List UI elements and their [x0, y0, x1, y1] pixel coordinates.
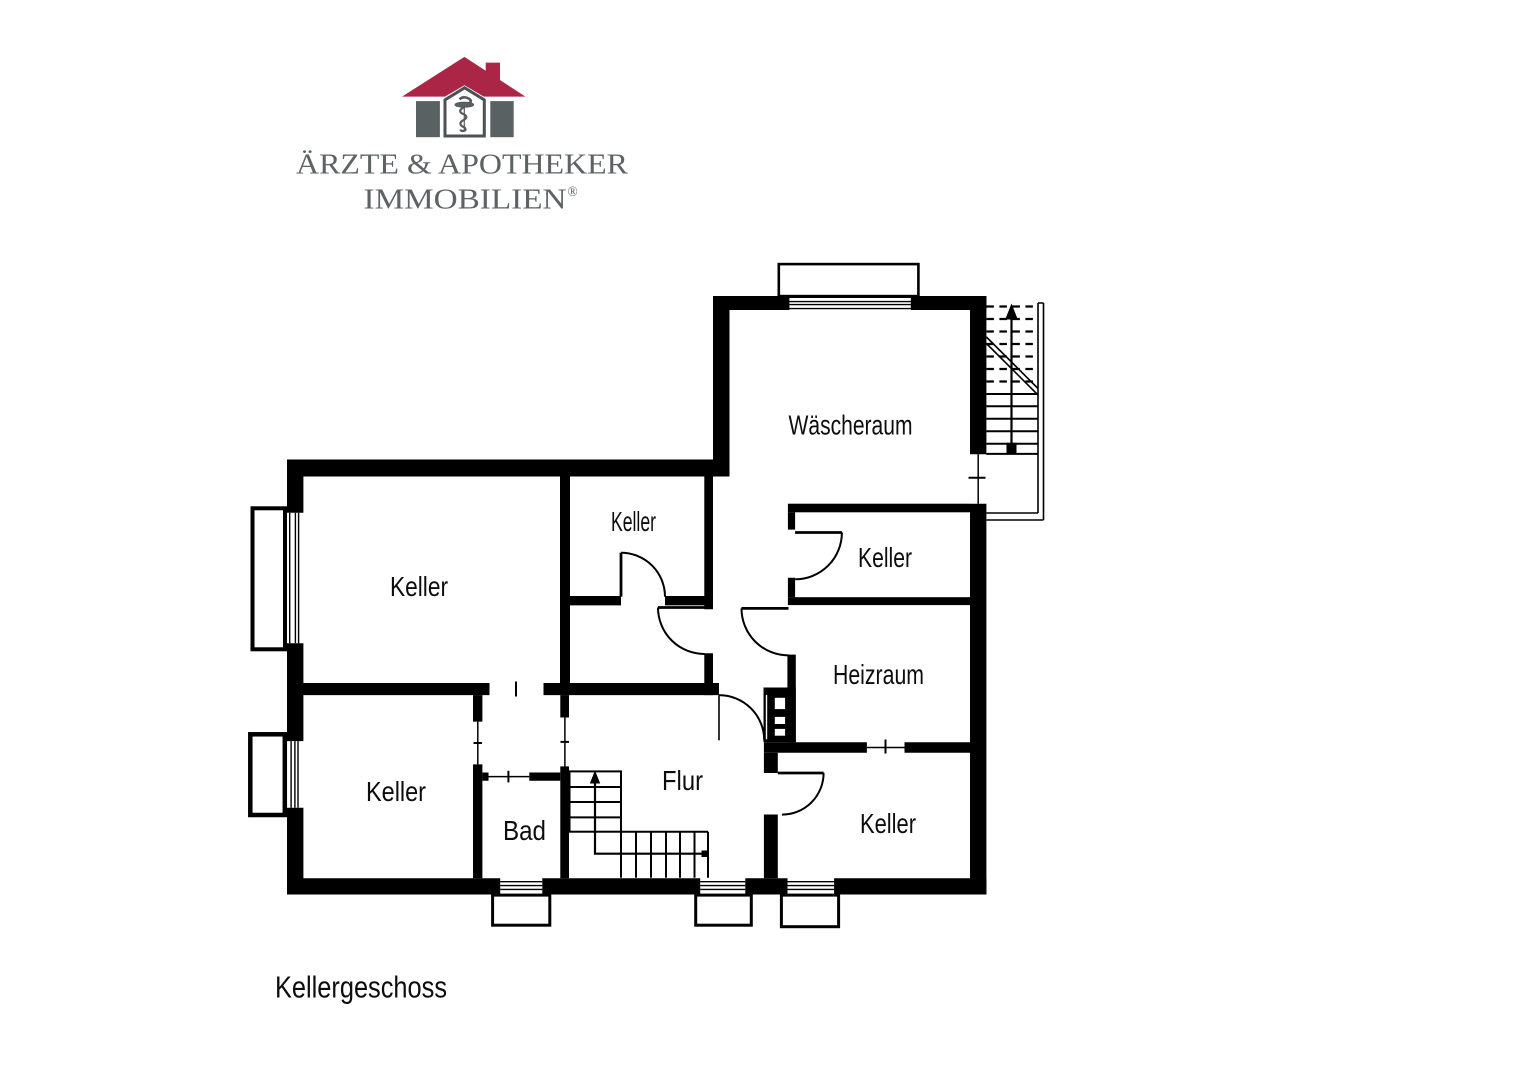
svg-text:Keller: Keller — [390, 571, 448, 602]
svg-text:Bad: Bad — [503, 815, 546, 846]
svg-text:®: ® — [568, 184, 578, 199]
svg-text:IMMOBILIEN: IMMOBILIEN — [364, 184, 567, 216]
svg-text:Keller: Keller — [611, 506, 656, 537]
svg-text:Keller: Keller — [860, 808, 916, 839]
svg-text:Keller: Keller — [858, 542, 912, 573]
svg-text:ÄRZTE & APOTHEKER: ÄRZTE & APOTHEKER — [296, 149, 629, 181]
svg-text:Keller: Keller — [366, 776, 426, 807]
svg-text:Heizraum: Heizraum — [833, 659, 924, 690]
svg-text:Kellergeschoss: Kellergeschoss — [275, 970, 447, 1005]
svg-text:Flur: Flur — [662, 765, 703, 796]
svg-text:Wäscheraum: Wäscheraum — [789, 410, 913, 441]
